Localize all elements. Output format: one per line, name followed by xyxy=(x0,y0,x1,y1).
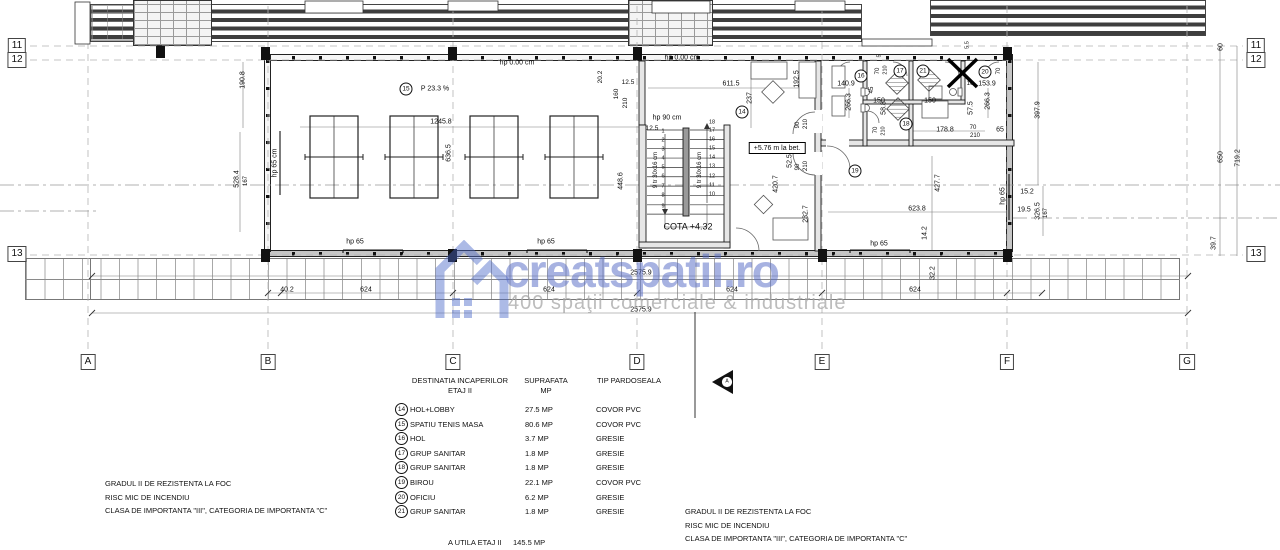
dimension-label: 1245.8 xyxy=(430,119,451,126)
dimension-label: 5 xyxy=(661,165,664,171)
dimension-label: A xyxy=(725,380,728,385)
grid-column-marker: D xyxy=(629,354,644,370)
legend-room-floor: COVOR PVC xyxy=(596,405,641,414)
room-tag: 21 xyxy=(917,65,930,78)
dimension-label: 40.2 xyxy=(280,287,294,294)
legend-room-number: 18 xyxy=(395,461,408,474)
dimension-label: 5.5 xyxy=(965,41,971,49)
terrace-pavers-divider xyxy=(25,279,1180,280)
dimension-label: 70 xyxy=(970,125,977,131)
dimension-label: 266.3 xyxy=(985,92,992,110)
room-tag: 15 xyxy=(400,83,413,96)
dimension-label: 13 xyxy=(709,164,715,170)
legend-room-floor: GRESIE xyxy=(596,434,624,443)
legend-room-name: HOL xyxy=(410,434,425,443)
dimension-label: 210 xyxy=(803,161,809,171)
dimension-label: 636.5 xyxy=(446,144,453,162)
fire-note-line: CLASA DE IMPORTANTA "III", CATEGORIA DE … xyxy=(105,504,327,518)
grid-column-marker: F xyxy=(1000,354,1014,370)
room-tag: 14 xyxy=(736,106,749,119)
dimension-label: 1 xyxy=(661,129,664,135)
door-arcs xyxy=(736,62,999,251)
exterior-wall-north xyxy=(265,54,1013,61)
dimension-label: 650 xyxy=(1218,151,1225,163)
dimension-label: 9 xyxy=(661,204,664,210)
dimension-label: 8 xyxy=(661,193,664,199)
dimension-label: 60 xyxy=(1218,43,1225,51)
dimension-label: 14 xyxy=(709,155,715,161)
dimension-label: 140.9 xyxy=(837,81,855,88)
dimension-label: 20.2 xyxy=(598,71,605,84)
dimension-label: 178.8 xyxy=(936,127,954,134)
dimension-label: 15 xyxy=(709,146,715,152)
legend-room-name: BIROU xyxy=(410,478,434,487)
dimension-label: 210 xyxy=(881,126,887,135)
legend-room-name: GRUP SANITAR xyxy=(410,463,466,472)
dimension-label: hp 0.00 cm xyxy=(500,60,535,67)
room-tag: 19 xyxy=(849,165,862,178)
dimension-label: 266.3 xyxy=(846,93,853,111)
legend-room-area: 1.8 MP xyxy=(525,449,549,458)
legend-footer-value: 145.5 MP xyxy=(513,538,545,547)
legend-room-area: 1.8 MP xyxy=(525,507,549,516)
dimension-label: 9 tr 30x16 cm xyxy=(653,152,659,188)
dimension-label: 52.5 xyxy=(787,154,794,168)
grid-row-marker: 12 xyxy=(1246,52,1265,68)
dimension-label: 10 xyxy=(709,192,715,198)
legend-header-area: SUPRAFATA xyxy=(516,376,576,385)
legend-footer-label: A UTILA ETAJ II xyxy=(448,538,502,547)
center-axes xyxy=(0,185,1280,218)
grid-column-marker: C xyxy=(445,354,460,370)
dimension-label: 528.4 xyxy=(234,170,241,188)
dimension-label: hp 65 xyxy=(870,241,888,248)
grid-row-marker: 12 xyxy=(7,52,26,68)
legend-room-number: 19 xyxy=(395,476,408,489)
legend-header-floor-label: ETAJ II xyxy=(395,386,525,395)
legend-room-floor: COVOR PVC xyxy=(596,420,641,429)
dimension-label: 167 xyxy=(243,176,249,186)
dimension-label: 12.5 xyxy=(622,80,635,87)
legend-room-area: 3.7 MP xyxy=(525,434,549,443)
legend-header-destination: DESTINATIA INCAPERILOR xyxy=(395,376,525,385)
exterior-wall-west xyxy=(264,55,271,252)
legend-room-number: 20 xyxy=(395,491,408,504)
dimension-label: hp 0.00 cm xyxy=(665,55,700,62)
legend-room-name: HOL+LOBBY xyxy=(410,405,455,414)
dimension-label: hp 65 xyxy=(537,239,555,246)
dimension-label: 2575.9 xyxy=(630,270,651,277)
dimension-label: 153.9 xyxy=(978,81,996,88)
legend-header-area-unit: MP xyxy=(516,386,576,395)
dimension-label: 45 xyxy=(869,87,875,94)
fire-notes-right: GRADUL II DE REZISTENTA LA FOCRISC MIC D… xyxy=(685,505,907,546)
structural-columns xyxy=(156,46,1012,262)
masonry-pier-1 xyxy=(133,0,212,46)
fire-note-line: CLASA DE IMPORTANTA "III", CATEGORIA DE … xyxy=(685,532,907,546)
legend-room-name: GRUP SANITAR xyxy=(410,507,466,516)
dimension-label: 232.7 xyxy=(803,205,810,223)
dimension-label: 17 xyxy=(709,128,715,134)
legend-table: DESTINATIA INCAPERILOR ETAJ II SUPRAFATA… xyxy=(388,376,698,550)
dimension-label: 624 xyxy=(726,287,738,294)
dimension-label: +5.76 m la bet. xyxy=(749,142,806,154)
dimension-label: 150 xyxy=(924,98,936,105)
legend-room-area: 22.1 MP xyxy=(525,478,553,487)
dimension-label: 12.5 xyxy=(646,126,659,133)
dimension-label: 2 xyxy=(661,138,664,144)
dimension-label: 70 xyxy=(996,68,1002,75)
dimension-label: 420.7 xyxy=(773,175,780,193)
legend-room-area: 80.6 MP xyxy=(525,420,553,429)
dimension-label: 14.2 xyxy=(922,226,929,240)
dimension-label: 58.8 xyxy=(881,101,888,115)
legend-room-name: GRUP SANITAR xyxy=(410,449,466,458)
dimension-label: 90 xyxy=(795,122,801,129)
section-marker xyxy=(695,312,733,418)
dimension-label: 160 xyxy=(614,89,621,100)
dimension-label: 237 xyxy=(747,92,754,104)
dimension-label: 210 xyxy=(623,98,630,109)
dimension-label: 4 xyxy=(661,156,664,162)
dimension-label: COTA +4.32 xyxy=(663,223,712,232)
dimension-label: 210 xyxy=(883,65,889,74)
legend-room-area: 6.2 MP xyxy=(525,493,549,502)
room-tag: 18 xyxy=(900,118,913,131)
legend-room-floor: GRESIE xyxy=(596,493,624,502)
legend-room-number: 17 xyxy=(395,447,408,460)
dimension-label: 2575.9 xyxy=(630,307,651,314)
legend-room-area: 27.5 MP xyxy=(525,405,553,414)
dimension-label: hp 65 xyxy=(1000,187,1007,205)
dimension-label: 19.5 xyxy=(1017,207,1031,214)
dimension-label: 624 xyxy=(543,287,555,294)
grid-column-marker: G xyxy=(1179,354,1195,370)
floor-plan-canvas: hp 0.00 cmhp 0.00 cmP 23.3 %1245.8190.8h… xyxy=(0,0,1280,550)
legend-room-floor: GRESIE xyxy=(596,449,624,458)
legend-room-number: 16 xyxy=(395,432,408,445)
dimension-label: 210 xyxy=(803,119,809,129)
dimension-label: 192.5 xyxy=(794,70,801,88)
dimension-label: 15.2 xyxy=(1020,189,1034,196)
dimension-label: 39.7 xyxy=(1211,236,1218,250)
grid-column-marker: A xyxy=(81,354,96,370)
dimension-label: 719.2 xyxy=(1235,149,1242,167)
legend-room-number: 15 xyxy=(395,418,408,431)
fire-note-line: RISC MIC DE INCENDIU xyxy=(685,519,907,533)
dimension-label: 427.7 xyxy=(935,174,942,192)
dimension-label: 32.2 xyxy=(930,266,937,280)
dimension-label: 18 xyxy=(709,120,715,126)
room-tag: 16 xyxy=(855,70,868,83)
legend-room-name: OFICIU xyxy=(410,493,435,502)
terrace-slab-edge xyxy=(90,258,91,300)
fire-note-line: RISC MIC DE INCENDIU xyxy=(105,491,327,505)
grid-row-marker: 13 xyxy=(1246,246,1265,262)
dimension-label: 11 xyxy=(709,183,715,189)
dimension-label: 210 xyxy=(970,133,980,139)
room-tag: 17 xyxy=(894,65,907,78)
dimension-label: hp 90 cm xyxy=(653,115,682,122)
exterior-wall-south xyxy=(265,250,1013,257)
dimension-label: 624 xyxy=(909,287,921,294)
dimension-label: 12 xyxy=(709,174,715,180)
dimension-label: P 23.3 % xyxy=(421,86,449,93)
dimension-label: 7 xyxy=(661,184,664,190)
legend-room-number: 14 xyxy=(395,403,408,416)
legend-room-name: SPATIU TENIS MASA xyxy=(410,420,483,429)
legend-header-flooring: TIP PARDOSEALA xyxy=(584,376,674,385)
grid-column-marker: E xyxy=(815,354,830,370)
dimension-label: 623.8 xyxy=(908,206,926,213)
dimension-label: 611.5 xyxy=(723,81,740,88)
dimension-label: 16 xyxy=(709,137,715,143)
dimension-label: 65 xyxy=(996,127,1004,134)
dimension-label: 5 xyxy=(877,54,883,57)
fire-note-line: GRADUL II DE REZISTENTA LA FOC xyxy=(685,505,907,519)
masonry-pier-2 xyxy=(628,0,713,46)
dimension-label: 70 xyxy=(873,127,879,134)
fire-notes-left: GRADUL II DE REZISTENTA LA FOCRISC MIC D… xyxy=(105,477,327,518)
dimension-label: 190.8 xyxy=(240,71,247,89)
dimension-label: 57.5 xyxy=(968,101,975,115)
dimension-label: 3 xyxy=(661,147,664,153)
dimension-label: 624 xyxy=(360,287,372,294)
door-openings xyxy=(814,110,849,175)
dimension-label: 70 xyxy=(875,68,881,75)
dimension-label: 9 tr 30x16 cm xyxy=(697,152,703,188)
dimension-label: 167 xyxy=(1043,208,1049,218)
dimension-label: 326.5 xyxy=(1035,202,1042,220)
roof-band-right xyxy=(930,0,1206,36)
legend-room-number: 21 xyxy=(395,505,408,518)
grid-row-marker: 13 xyxy=(7,246,26,262)
dimension-label: 90 xyxy=(795,164,801,171)
dimension-label: hp 65 xyxy=(346,239,364,246)
dimension-label: 397.9 xyxy=(1035,101,1042,119)
dimension-label: 448.6 xyxy=(618,172,625,190)
dimension-label: hp 65 cm xyxy=(272,149,279,178)
room-tag: 20 xyxy=(979,66,992,79)
legend-room-floor: GRESIE xyxy=(596,463,624,472)
dimension-label: 6 xyxy=(661,174,664,180)
legend-room-floor: GRESIE xyxy=(596,507,624,516)
legend-room-floor: COVOR PVC xyxy=(596,478,641,487)
dimension-label: 10 xyxy=(967,81,974,87)
grid-column-marker: B xyxy=(261,354,276,370)
exterior-wall-east xyxy=(1006,55,1013,252)
sill-brackets xyxy=(280,131,1009,253)
legend-room-area: 1.8 MP xyxy=(525,463,549,472)
fire-note-line: GRADUL II DE REZISTENTA LA FOC xyxy=(105,477,327,491)
table-tennis-tables xyxy=(305,116,603,198)
